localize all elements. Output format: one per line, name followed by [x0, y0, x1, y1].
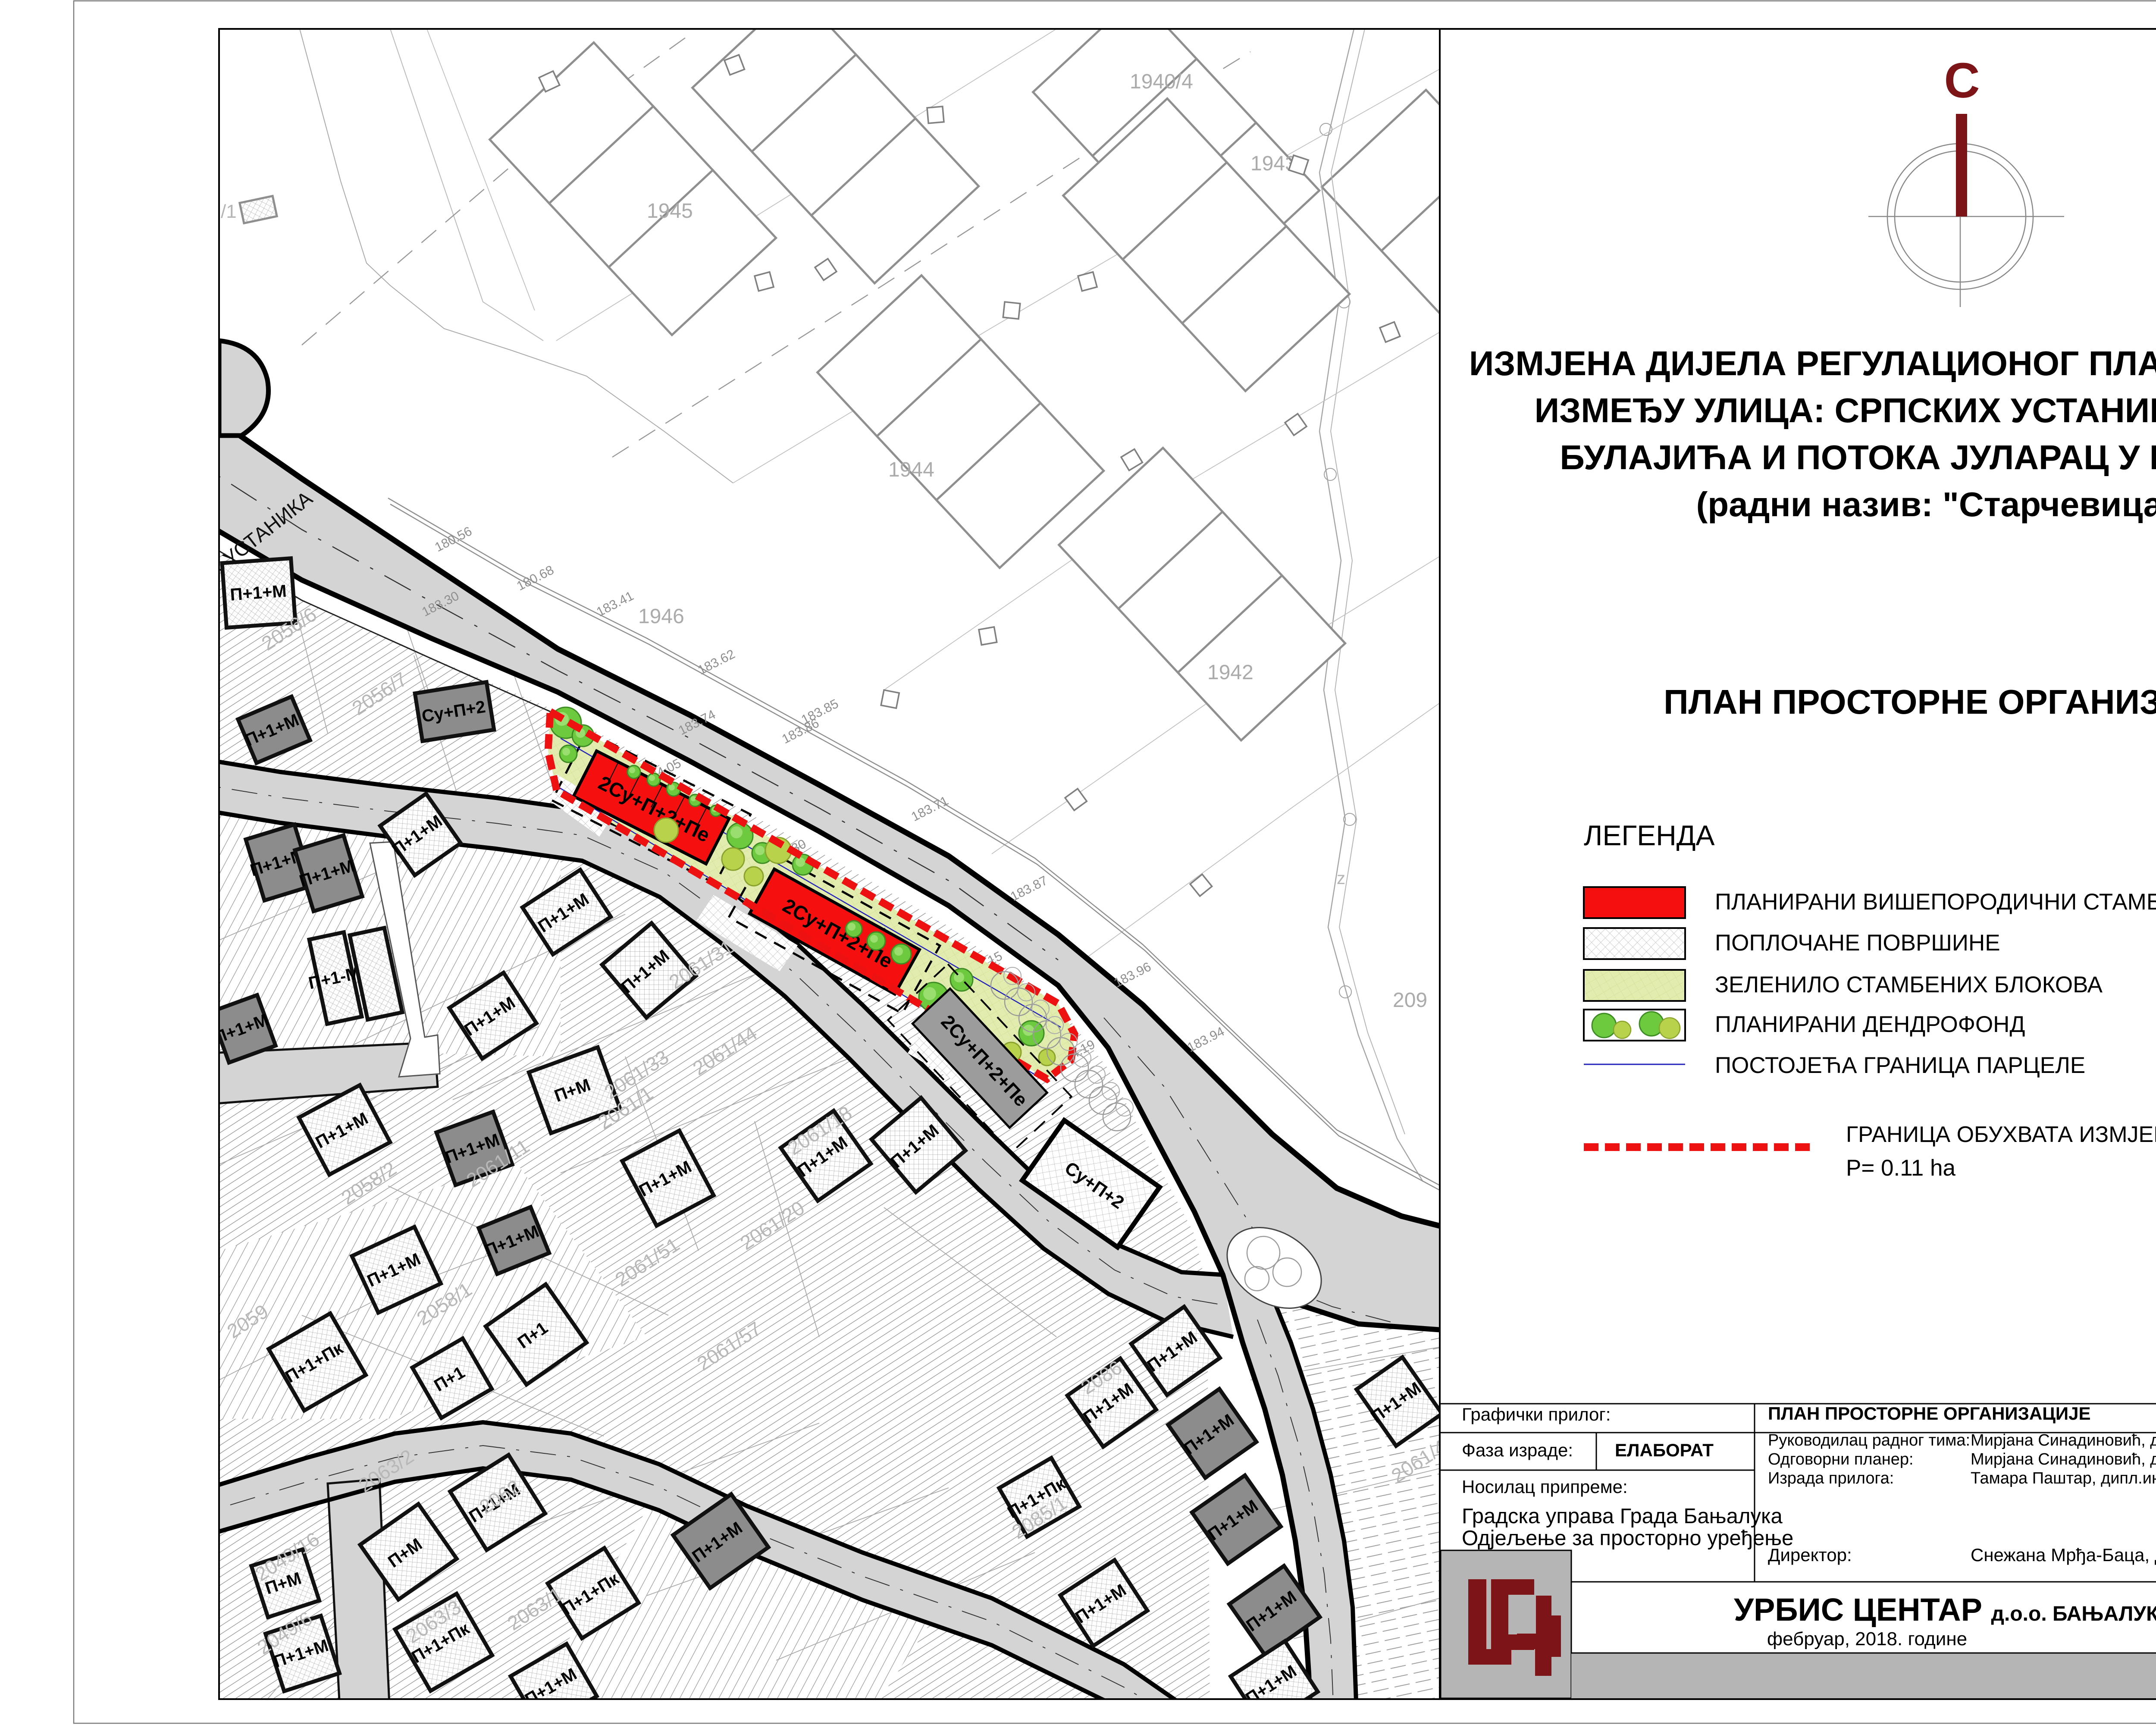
svg-text:Израда прилога:: Израда прилога: [1768, 1469, 1894, 1487]
svg-text:Фаза израде:: Фаза израде: [1462, 1440, 1573, 1460]
svg-text:ЗЕЛЕНИЛО СТАМБЕНИХ БЛОКОВА: ЗЕЛЕНИЛО СТАМБЕНИХ БЛОКОВА [1715, 972, 2103, 997]
svg-text:БУЛАЈИЋА И ПОТОКА ЈУЛАРАЦ У БА: БУЛАЈИЋА И ПОТОКА ЈУЛАРАЦ У БАЊАЛУЦИ [1560, 438, 2156, 477]
svg-text:ПОПЛОЧАНЕ ПОВРШИНЕ: ПОПЛОЧАНЕ ПОВРШИНЕ [1715, 930, 2000, 956]
svg-text:Мирјана Синадиновић, дипл.инж.: Мирјана Синадиновић, дипл.инж.арх. [1971, 1431, 2156, 1449]
svg-text:(радни назив: "Старчевица 2"): (радни назив: "Старчевица 2") [1696, 485, 2156, 524]
svg-text:ЕЛАБОРАТ: ЕЛАБОРАТ [1615, 1440, 1714, 1460]
svg-text:1946: 1946 [638, 605, 684, 628]
svg-text:1943: 1943 [1250, 152, 1297, 175]
svg-text:/1: /1 [221, 201, 237, 222]
svg-text:ГРАНИЦА ОБУХВАТА ИЗМЈЕНЕ РЕГУЛ: ГРАНИЦА ОБУХВАТА ИЗМЈЕНЕ РЕГУЛАЦИОНОГ ПЛ… [1846, 1122, 2156, 1147]
svg-text:ИЗМЕЂУ УЛИЦА: СРПСКИХ УСТАНИКА: ИЗМЕЂУ УЛИЦА: СРПСКИХ УСТАНИКА, СТЕВАНА [1535, 391, 2156, 430]
svg-text:z: z [1337, 869, 1345, 888]
svg-text:209: 209 [1393, 989, 1427, 1012]
svg-text:Тамара Паштар, дипл.инж.арх.: Тамара Паштар, дипл.инж.арх. [1971, 1469, 2156, 1487]
svg-text:1945: 1945 [647, 200, 693, 223]
svg-text:фебруар, 2018. године: фебруар, 2018. године [1767, 1628, 1967, 1650]
svg-text:Носилац припреме:: Носилац припреме: [1462, 1477, 1628, 1497]
svg-text:П+1+М: П+1+М [229, 582, 287, 605]
svg-text:1940/4: 1940/4 [1130, 70, 1193, 93]
svg-text:Руководилац радног тима:: Руководилац радног тима: [1768, 1431, 1970, 1449]
svg-text:ПЛАН ПРОСТОРНЕ ОРГАНИЗАЦИЈЕ: ПЛАН ПРОСТОРНЕ ОРГАНИЗАЦИЈЕ [1768, 1403, 2090, 1424]
svg-text:1942: 1942 [1207, 661, 1253, 684]
svg-text:Р= 0.11 ha: Р= 0.11 ha [1846, 1155, 1955, 1181]
svg-text:ПЛАНИРАНИ ДЕНДРОФОНД: ПЛАНИРАНИ ДЕНДРОФОНД [1715, 1012, 2025, 1037]
svg-text:Снежана Мрђа-Баца, дипл.инж.ар: Снежана Мрђа-Баца, дипл.инж.арх. [1971, 1545, 2156, 1565]
svg-text:Директор:: Директор: [1768, 1545, 1852, 1565]
svg-text:ПОСТОЈЕЋА ГРАНИЦА ПАРЦЕЛЕ: ПОСТОЈЕЋА ГРАНИЦА ПАРЦЕЛЕ [1715, 1053, 2085, 1078]
svg-text:С: С [1944, 53, 1980, 108]
svg-text:Мирјана Синадиновић, дипл.инж.: Мирјана Синадиновић, дипл.инж.арх. [1971, 1450, 2156, 1468]
svg-text:Одговорни планер:: Одговорни планер: [1768, 1450, 1914, 1468]
svg-text:ИЗМЈЕНА ДИЈЕЛА РЕГУЛАЦИОНОГ ПЛ: ИЗМЈЕНА ДИЈЕЛА РЕГУЛАЦИОНОГ ПЛАНА ЗА ПРО… [1469, 344, 2156, 383]
svg-text:ПЛАН ПРОСТОРНЕ ОРГАНИЗАЦИЈЕ: ПЛАН ПРОСТОРНЕ ОРГАНИЗАЦИЈЕ [1664, 683, 2156, 721]
svg-text:1944: 1944 [888, 458, 934, 481]
svg-text:Графички прилог:: Графички прилог: [1462, 1404, 1611, 1424]
svg-text:ПЛАНИРАНИ ВИШЕПОРОДИЧНИ СТАМБЕ: ПЛАНИРАНИ ВИШЕПОРОДИЧНИ СТАМБЕНО-ПОСЛОВН… [1715, 889, 2156, 915]
svg-text:Одјељење за просторно уређење: Одјељење за просторно уређење [1462, 1527, 1793, 1550]
svg-text:ЛЕГЕНДА: ЛЕГЕНДА [1584, 819, 1714, 851]
svg-text:Градска управа Града Бањалука: Градска управа Града Бањалука [1462, 1505, 1783, 1528]
